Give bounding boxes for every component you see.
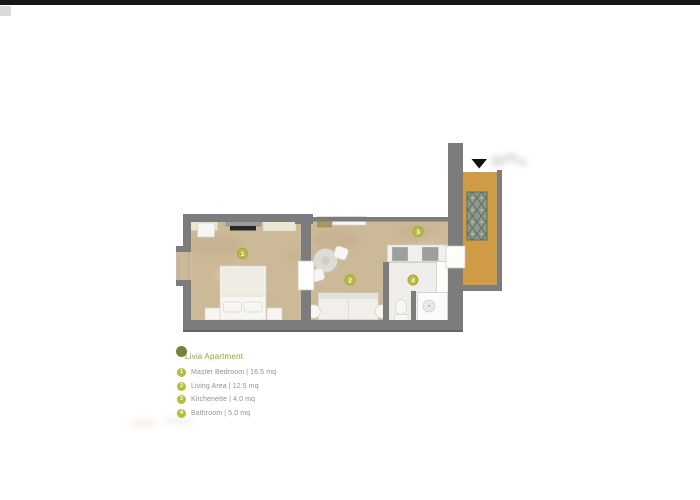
legend-item-living-area: 2 Living Area | 12.5 mq bbox=[177, 382, 276, 392]
window-stub-top bbox=[176, 246, 191, 252]
desk bbox=[198, 223, 215, 237]
legend-number-badge: 3 bbox=[177, 395, 186, 404]
sofa-back bbox=[319, 293, 379, 299]
wall-top-bedroom bbox=[183, 214, 313, 222]
partition-bedroom-upper bbox=[301, 222, 311, 263]
legend-item-master-bedroom: 1 Master Bedroom | 16.5 mq bbox=[177, 368, 276, 378]
wall-bottom-edge bbox=[183, 330, 463, 332]
pillow-right bbox=[244, 302, 262, 312]
cooktop bbox=[393, 248, 408, 261]
wall-bathroom-left bbox=[383, 262, 389, 320]
room-marker-number: 2 bbox=[348, 278, 352, 285]
legend-item-bathroom: 4 Bathroom | 5.0 mq bbox=[177, 409, 276, 419]
legend-label: Living Area | 12.5 mq bbox=[191, 383, 259, 390]
toilet bbox=[396, 300, 407, 315]
wall-corridor-right bbox=[497, 170, 502, 289]
room-marker-master-bedroom: 1 bbox=[237, 248, 247, 258]
dining-table-center bbox=[321, 256, 329, 264]
bedroom-door bbox=[298, 261, 314, 290]
legend: Livia Apartment 1 Master Bedroom | 16.5 … bbox=[177, 346, 276, 422]
nightstand-right bbox=[267, 308, 282, 320]
sink bbox=[423, 248, 439, 261]
legend-label: Bathroom | 5.0 mq bbox=[191, 410, 250, 417]
wall-right-upper bbox=[448, 214, 463, 246]
wall-corridor-cap bbox=[463, 285, 502, 291]
room-marker-number: 1 bbox=[241, 251, 245, 258]
toilet-tank bbox=[395, 315, 409, 321]
shower-drain bbox=[428, 305, 430, 307]
legend-number-badge: 2 bbox=[177, 382, 186, 391]
legend-number-badge: 1 bbox=[177, 368, 186, 377]
legend-label: Kitchenette | 4.0 mq bbox=[191, 396, 255, 403]
room-marker-bathroom: 4 bbox=[408, 275, 418, 285]
apartment-title: Livia Apartment bbox=[177, 351, 243, 363]
partition-bedroom-lower bbox=[301, 289, 311, 320]
kitchenette-furniture bbox=[388, 245, 448, 263]
tv bbox=[230, 226, 256, 231]
room-marker-living-area: 2 bbox=[345, 275, 355, 285]
room-marker-kitchenette: 3 bbox=[413, 226, 423, 236]
screenshot-canvas: 1 2 3 4 Livia Apartment 1 Master Bedroom… bbox=[0, 0, 700, 500]
floor-plan: 1 2 3 4 bbox=[0, 0, 700, 500]
legend-item-kitchenette: 3 Kitchenette | 4.0 mq bbox=[177, 395, 276, 405]
wall-right-lower bbox=[448, 268, 463, 332]
room-marker-number: 4 bbox=[411, 278, 415, 285]
watermark bbox=[490, 153, 528, 168]
apartment-marker-icon bbox=[176, 346, 187, 357]
room-marker-number: 3 bbox=[416, 229, 420, 236]
wall-top-living bbox=[311, 217, 448, 222]
entry-door bbox=[446, 246, 465, 268]
entrance-rug bbox=[467, 192, 487, 240]
legend-label: Master Bedroom | 16.5 mq bbox=[191, 369, 276, 376]
legend-number-badge: 4 bbox=[177, 409, 186, 418]
wall-bathroom-internal bbox=[411, 291, 416, 320]
wall-entrance-vertical bbox=[448, 143, 463, 214]
pillow-left bbox=[224, 302, 242, 312]
entrance-arrow-icon bbox=[472, 159, 488, 169]
nightstand-left bbox=[205, 308, 220, 320]
legend-title-row: Livia Apartment bbox=[177, 346, 276, 359]
bed-blanket bbox=[222, 267, 265, 295]
